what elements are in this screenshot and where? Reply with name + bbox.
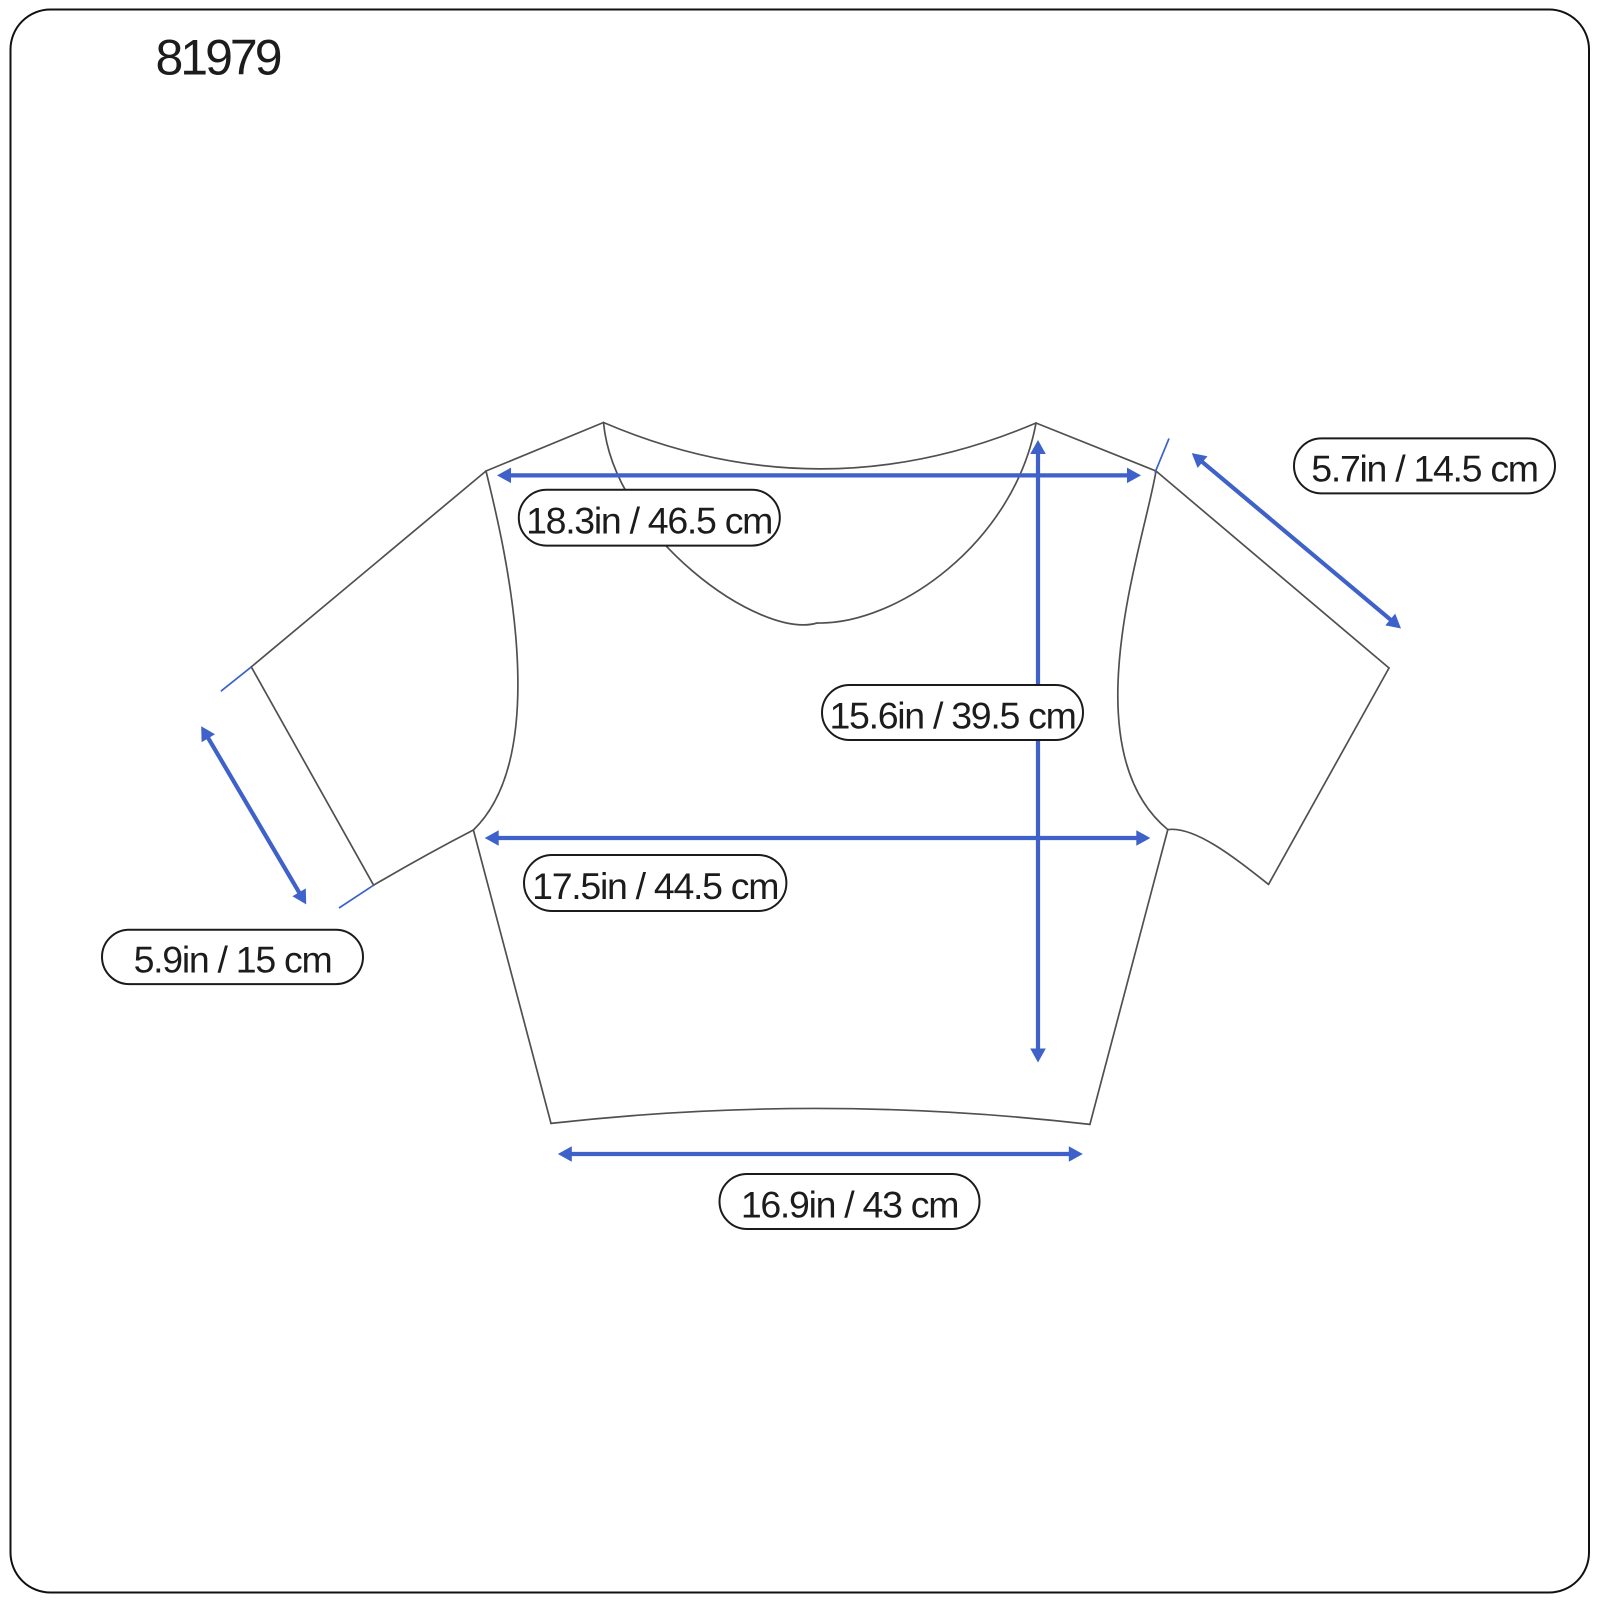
- svg-text:15.6in / 39.5 cm: 15.6in / 39.5 cm: [829, 694, 1075, 736]
- svg-text:81979: 81979: [156, 30, 281, 86]
- svg-text:5.7in / 14.5 cm: 5.7in / 14.5 cm: [1311, 448, 1537, 490]
- svg-text:18.3in / 46.5 cm: 18.3in / 46.5 cm: [526, 500, 772, 542]
- svg-text:5.9in / 15 cm: 5.9in / 15 cm: [134, 939, 332, 981]
- svg-text:16.9in / 43 cm: 16.9in / 43 cm: [741, 1183, 958, 1225]
- svg-text:17.5in / 44.5 cm: 17.5in / 44.5 cm: [532, 865, 778, 907]
